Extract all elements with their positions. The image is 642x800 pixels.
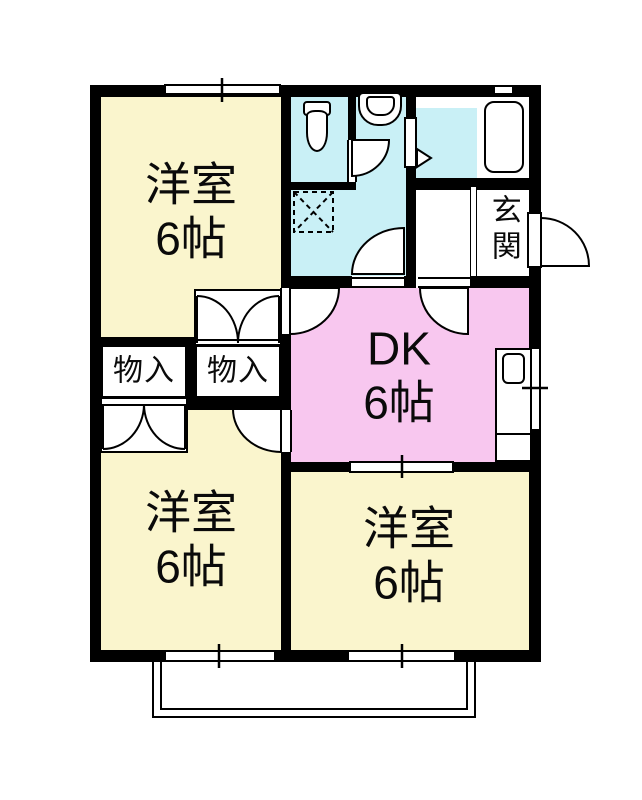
wall-above-closet [101,337,195,345]
doorway-toilet [347,140,357,182]
wall-toilet-right [348,97,356,140]
window-bottom-room-br [347,650,456,662]
bathtub-icon [484,101,524,173]
balcony-inner-line [160,655,468,710]
front-door-swing [541,218,589,266]
wall-center-vertical-lower [281,452,291,650]
wall-dk-top-right [470,276,529,288]
label-entrance: 玄関 [485,194,520,266]
room-washroom-main [291,190,406,276]
closet-name: 物入 [113,353,175,388]
washbasin-inner-icon [366,96,395,116]
kitchen-counter-divider [495,433,532,435]
room-name: DK [363,322,435,376]
wall-bottom [90,650,541,662]
room-size: 6帖 [363,556,455,610]
label-room-western-bottom-left: 洋室 6帖 [145,486,237,595]
room-name: 洋室 [363,502,455,556]
wall-below-closet [187,398,291,410]
toilet-bowl-icon [306,110,328,152]
room-bathroom-floor [416,108,477,180]
doorway-washroom-to-dk [352,277,404,288]
label-closet-lower: 物入 [113,353,175,388]
room-name: 洋室 [145,158,237,212]
wall-center-vertical-upper [281,97,291,288]
kitchen-sink-icon [502,353,525,384]
wall-dk-bottom-left [281,462,350,472]
window-bottom-room-bl [164,650,276,662]
wall-bath-left-lower [406,168,416,277]
label-closet-upper: 物入 [207,353,269,388]
wall-dk-top-left [281,276,352,288]
room-size: 6帖 [145,212,237,266]
doorway-room-tl-to-dk [280,288,292,334]
label-dining-kitchen: DK 6帖 [363,322,435,431]
window-bathroom-top [493,85,514,95]
room-name: 洋室 [145,486,237,540]
wall-dk-bottom-right [453,462,529,472]
doorway-hall-to-dk [418,277,470,288]
entrance-step-line [470,187,477,276]
room-size: 6帖 [363,376,435,430]
wall-top [90,85,541,97]
wall-bath-left-upper [406,97,416,117]
wall-dk-top-mid [404,276,416,288]
wall-toilet-bottom [291,182,356,190]
wall-left [90,85,101,662]
doorway-dk-to-room-bl [280,410,292,452]
label-room-western-bottom-right: 洋室 6帖 [363,502,455,611]
bath-door-panel [404,117,417,168]
label-room-western-top-left: 洋室 6帖 [145,158,237,267]
room-size: 6帖 [145,540,237,594]
sliding-door-dk-to-room-br [349,461,454,473]
window-top-room-tl [164,84,281,95]
closet-name: 物入 [207,353,269,388]
floor-plan: 洋室 6帖 洋室 6帖 洋室 6帖 DK 6帖 物入 物入 玄関 [0,0,642,800]
front-door-leaf [527,212,542,268]
